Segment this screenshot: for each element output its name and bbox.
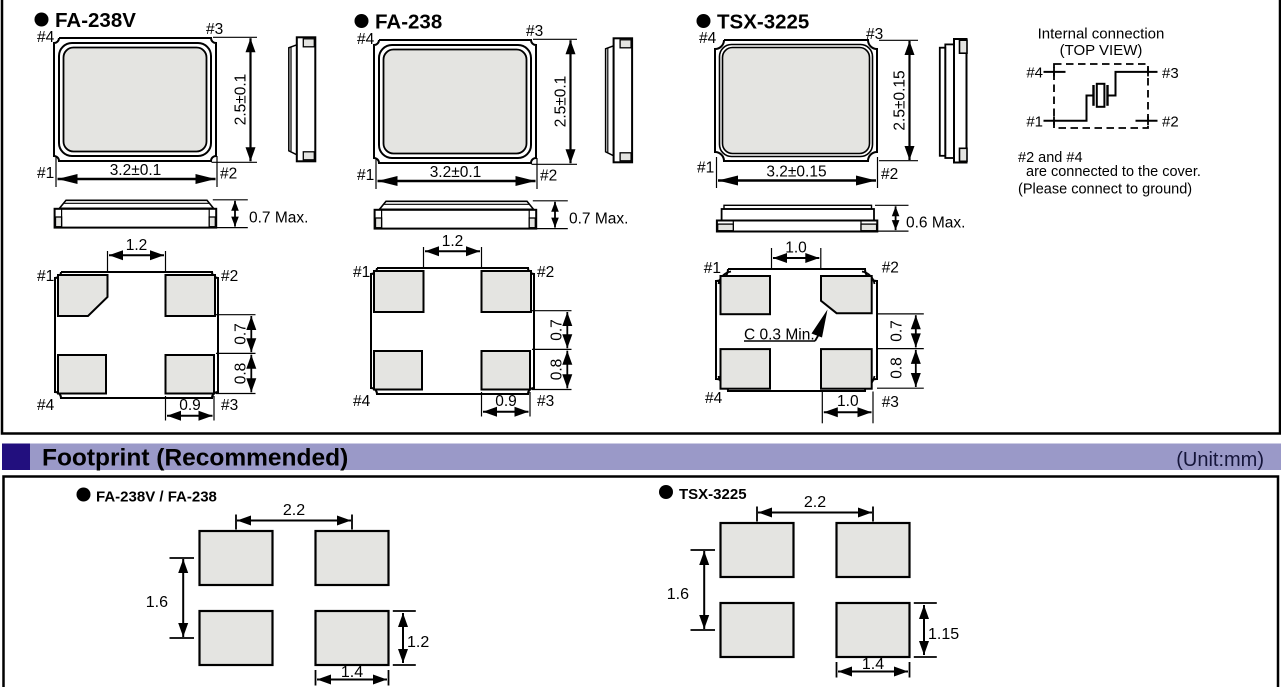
- svg-text:#1: #1: [357, 167, 374, 184]
- svg-text:FA-238: FA-238: [375, 11, 442, 34]
- svg-text:#1: #1: [697, 160, 714, 177]
- svg-text:#2: #2: [220, 166, 237, 183]
- svg-text:#4: #4: [699, 30, 717, 47]
- svg-text:1.15: 1.15: [928, 626, 959, 643]
- svg-text:#3: #3: [206, 21, 223, 38]
- svg-text:1.6: 1.6: [146, 594, 168, 611]
- svg-text:#2: #2: [221, 268, 238, 285]
- svg-text:#1: #1: [37, 165, 54, 182]
- svg-text:TSX-3225: TSX-3225: [679, 486, 747, 503]
- svg-text:2.2: 2.2: [283, 502, 305, 519]
- svg-text:#2: #2: [882, 259, 899, 276]
- svg-text:#3: #3: [882, 394, 899, 411]
- svg-text:#1: #1: [1026, 113, 1043, 130]
- svg-text:3.2±0.15: 3.2±0.15: [766, 164, 826, 181]
- svg-text:FA-238V: FA-238V: [55, 9, 136, 32]
- svg-text:(TOP VIEW): (TOP VIEW): [1060, 42, 1143, 59]
- svg-text:#3: #3: [526, 23, 543, 40]
- svg-text:1.2: 1.2: [442, 233, 464, 250]
- svg-text:0.9: 0.9: [495, 393, 517, 410]
- svg-text:FA-238V / FA-238: FA-238V / FA-238: [96, 489, 217, 506]
- svg-text:#1: #1: [353, 264, 370, 281]
- svg-text:Internal connection: Internal connection: [1038, 26, 1165, 43]
- svg-text:1.6: 1.6: [667, 586, 689, 603]
- svg-text:#1: #1: [704, 260, 721, 277]
- svg-text:#4: #4: [353, 393, 371, 410]
- svg-text:0.6 Max.: 0.6 Max.: [906, 215, 965, 232]
- svg-text:1.2: 1.2: [407, 634, 429, 651]
- svg-text:0.8: 0.8: [889, 357, 906, 379]
- svg-text:TSX-3225: TSX-3225: [717, 11, 809, 34]
- svg-text:#4: #4: [37, 29, 55, 46]
- svg-text:0.7: 0.7: [889, 320, 906, 342]
- svg-text:0.8: 0.8: [549, 359, 566, 381]
- svg-text:0.9: 0.9: [179, 397, 201, 414]
- svg-text:#2: #2: [881, 166, 898, 183]
- svg-text:(Unit:mm): (Unit:mm): [1176, 449, 1264, 471]
- svg-text:#4: #4: [37, 397, 55, 414]
- svg-text:#1: #1: [37, 268, 54, 285]
- svg-text:#2: #2: [1162, 113, 1179, 130]
- svg-text:1.4: 1.4: [341, 664, 363, 681]
- svg-text:#4: #4: [705, 390, 723, 407]
- svg-text:#3: #3: [537, 393, 554, 410]
- svg-text:0.7 Max.: 0.7 Max.: [249, 209, 308, 226]
- svg-text:1.2: 1.2: [126, 237, 148, 254]
- svg-text:(Please connect to ground): (Please connect to ground): [1018, 182, 1192, 198]
- svg-text:1.0: 1.0: [837, 393, 859, 410]
- svg-text:#4: #4: [357, 31, 375, 48]
- svg-text:#2: #2: [537, 264, 554, 281]
- svg-text:2.5±0.1: 2.5±0.1: [233, 74, 250, 126]
- svg-text:3.2±0.1: 3.2±0.1: [110, 162, 162, 179]
- svg-text:#3: #3: [1162, 65, 1179, 82]
- svg-text:2.5±0.15: 2.5±0.15: [892, 70, 909, 130]
- svg-text:3.2±0.1: 3.2±0.1: [430, 164, 482, 181]
- svg-text:2.2: 2.2: [804, 494, 826, 511]
- svg-text:0.7: 0.7: [233, 323, 250, 345]
- svg-text:#3: #3: [221, 397, 238, 414]
- svg-text:are connected to the cover.: are connected to the cover.: [1026, 164, 1201, 180]
- svg-text:0.7: 0.7: [549, 319, 566, 341]
- svg-text:1.0: 1.0: [785, 240, 807, 257]
- svg-text:0.7 Max.: 0.7 Max.: [569, 210, 628, 227]
- svg-text:#4: #4: [1026, 65, 1043, 82]
- svg-text:#2: #2: [540, 168, 557, 185]
- svg-text:1.4: 1.4: [862, 656, 884, 673]
- svg-text:Footprint (Recommended): Footprint (Recommended): [42, 445, 348, 472]
- svg-text:2.5±0.1: 2.5±0.1: [553, 76, 570, 128]
- svg-text:0.8: 0.8: [233, 363, 250, 385]
